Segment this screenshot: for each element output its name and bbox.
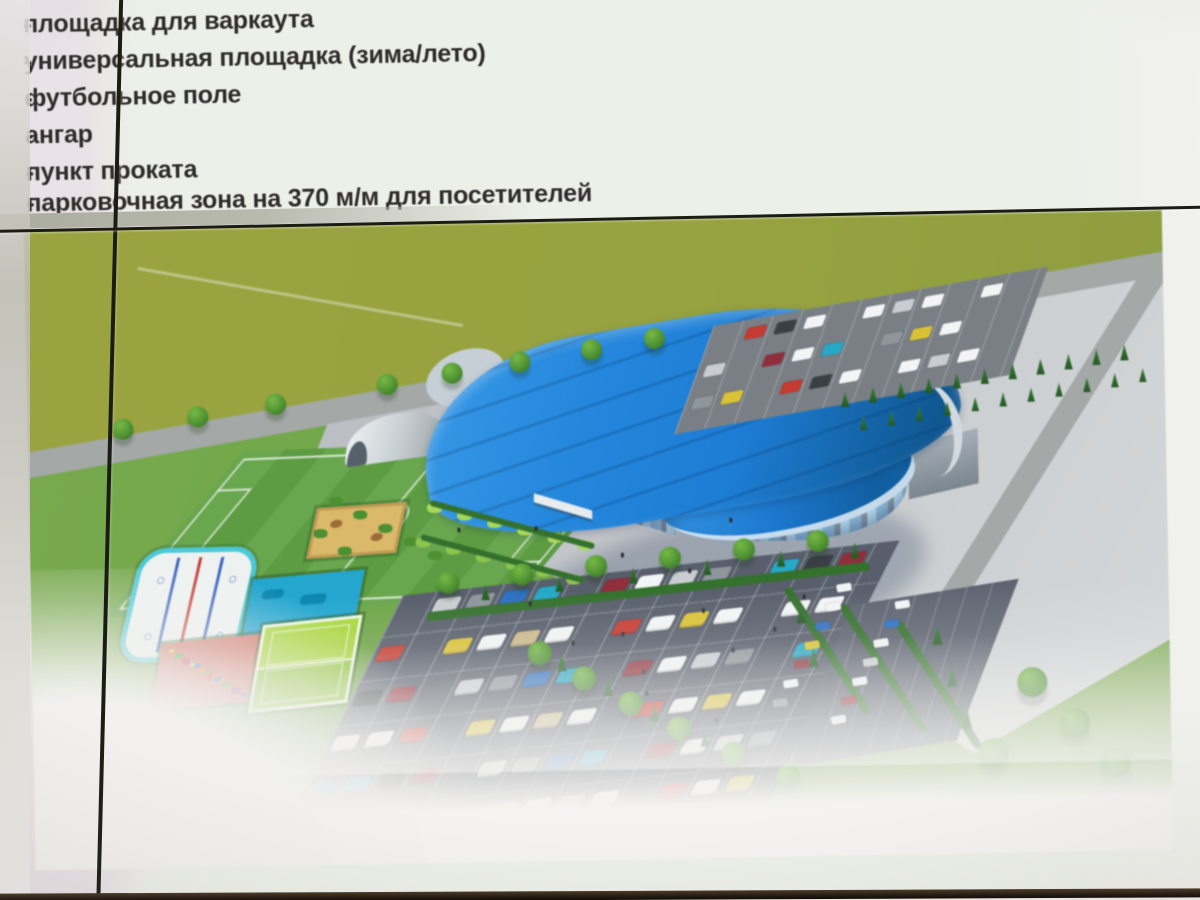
slide-bullet-list: -площадка для варкаута -универсальная пл… — [22, 0, 786, 218]
bullet-text: универсальная площадка (зима/лето) — [24, 39, 486, 76]
wall-left-edge — [0, 0, 30, 900]
site-rendering — [24, 210, 1174, 871]
bullet-text: ангар — [25, 120, 93, 150]
videowall-photo: -площадка для варкаута -универсальная пл… — [0, 0, 1200, 900]
presentation-slide: -площадка для варкаута -универсальная пл… — [0, 0, 1200, 900]
bullet-text: пункт проката — [26, 155, 198, 187]
photo-overexposure — [24, 562, 476, 870]
bullet-text: футбольное поле — [24, 81, 241, 114]
bullet-text: площадка для варкаута — [23, 5, 314, 39]
